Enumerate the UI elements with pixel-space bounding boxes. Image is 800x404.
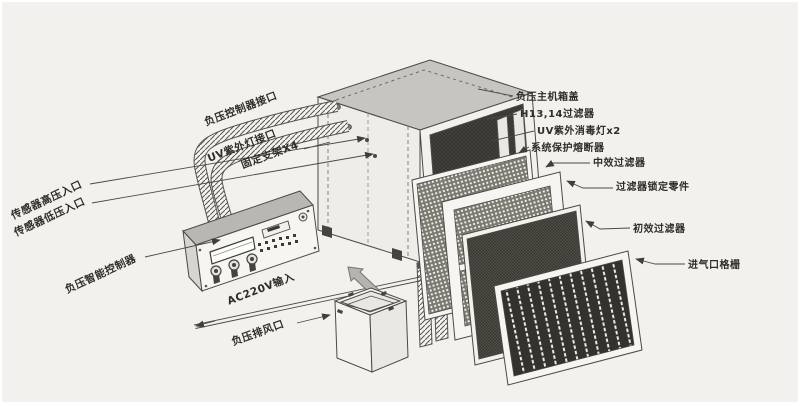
label-inlet-grille: 进气口格栅 [688,258,741,271]
label-case-cover: 负压主机箱盖 [516,90,579,103]
label-pre-filter: 初效过滤器 [633,222,686,235]
sensor-port-high [365,138,369,142]
label-lock-parts: 过滤器锁定零件 [616,180,690,193]
diagram-svg: 负压主机箱盖 H13,14过滤器 UV紫外消毒灯x2 系统保护熔断器 中效过滤器… [0,0,800,404]
label-hepa-filter: H13,14过滤器 [520,107,595,120]
label-mid-filter: 中效过滤器 [593,156,646,169]
label-fuse: 系统保护熔断器 [531,141,605,154]
exploded-diagram: 负压主机箱盖 H13,14过滤器 UV紫外消毒灯x2 系统保护熔断器 中效过滤器… [0,0,800,404]
label-uv-lamp: UV紫外消毒灯x2 [537,124,621,137]
knob-dot [302,216,305,219]
sensor-port-low [373,154,377,158]
